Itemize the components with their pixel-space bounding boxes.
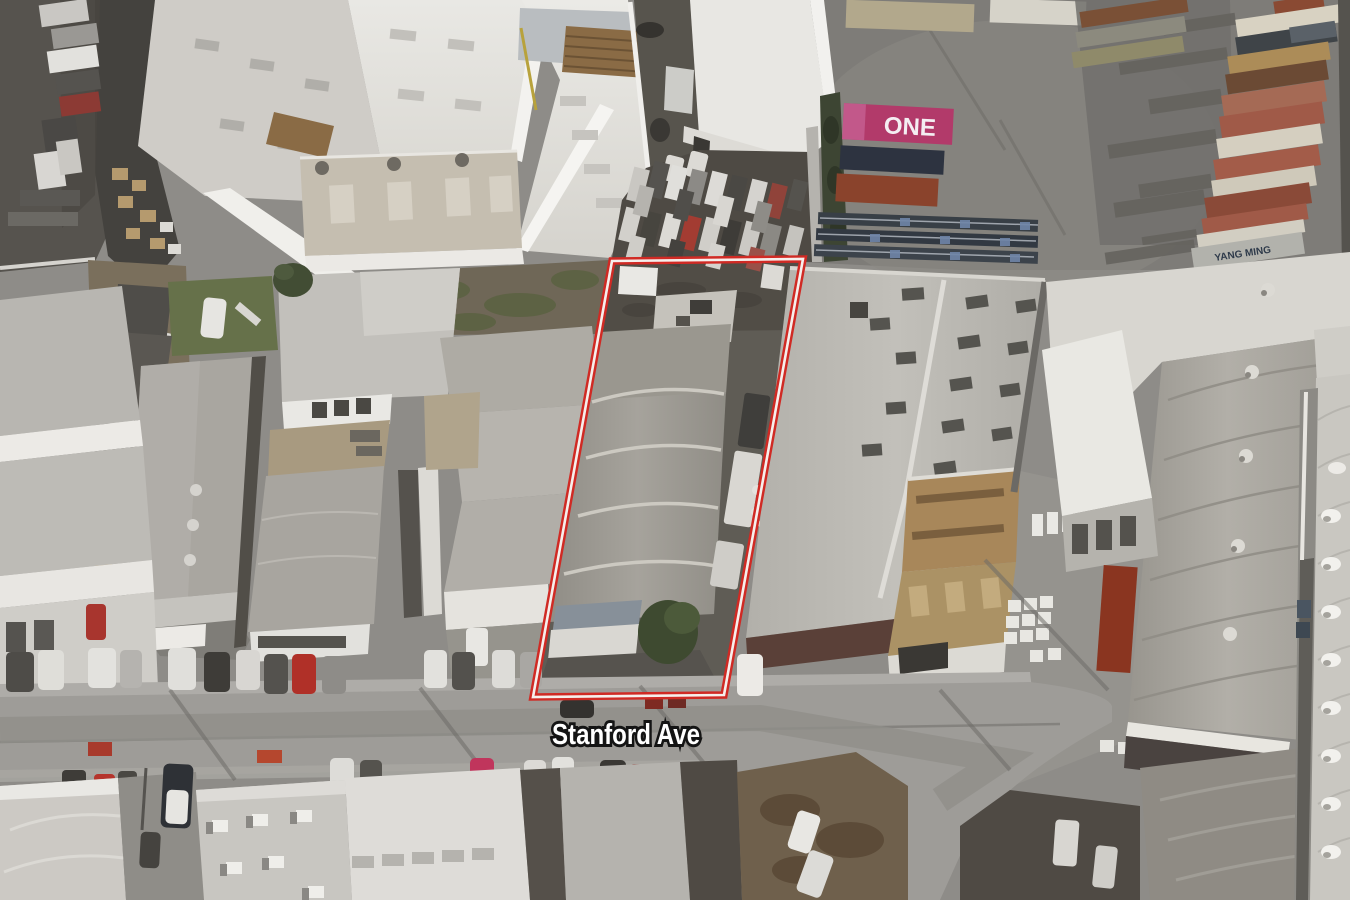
svg-text:Stanford Ave: Stanford Ave [552, 719, 700, 751]
svg-text:ONE: ONE [883, 112, 936, 142]
